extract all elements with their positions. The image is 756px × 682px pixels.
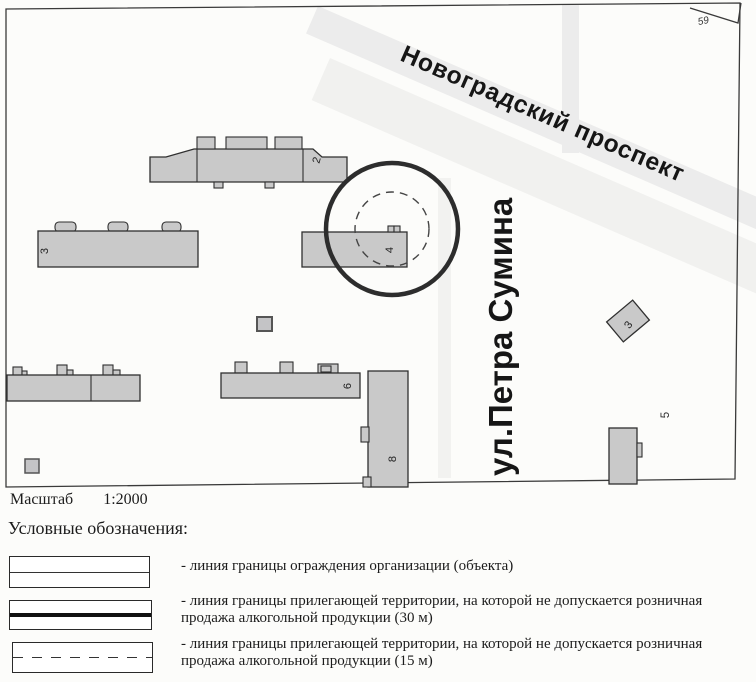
legend-swatch-15m-line (12, 642, 153, 673)
thick-solid-line-sample (10, 613, 151, 617)
legend-swatch-30m-line (9, 600, 152, 630)
scale-value: 1:2000 (103, 491, 147, 508)
scale-row: Масштаб1:2000 (10, 491, 148, 509)
building-8-number: 8 (387, 456, 399, 462)
legend-item-2-text: - линия границы прилегающей территории, … (181, 593, 746, 627)
thin-solid-line-sample (10, 572, 149, 573)
small-structure-center (257, 317, 272, 331)
small-structure-bottom-left (25, 459, 39, 473)
building-bottom-left (7, 365, 140, 401)
scale-label: Масштаб (10, 491, 73, 508)
building-6: 6 (221, 362, 360, 398)
building-4-number: 4 (384, 247, 396, 253)
building-8: 8 (361, 371, 408, 487)
dashed-line-sample (13, 657, 152, 659)
legend-item-1-text: - линия границы ограждения организации (… (181, 558, 746, 575)
building-bottom-right (609, 428, 642, 484)
legend-item-3-text: - линия границы прилегающей территории, … (181, 636, 746, 670)
building-2: 2 (150, 137, 347, 188)
legend-swatch-fence-line (9, 556, 150, 588)
site-plan-map: 2 3 4 6 (0, 0, 756, 491)
parcel-59-label: 59 (697, 15, 711, 28)
building-3-left-number: 3 (39, 248, 51, 254)
building-3-right: 3 (607, 300, 650, 342)
street-road-band (438, 178, 451, 478)
legend-title: Условные обозначения: (8, 518, 188, 539)
building-3-left: 3 (38, 222, 198, 267)
street-name-label: ул.Петра Сумина (482, 197, 519, 476)
parcel-5-label: 5 (660, 412, 672, 418)
building-6-number: 6 (342, 383, 354, 389)
